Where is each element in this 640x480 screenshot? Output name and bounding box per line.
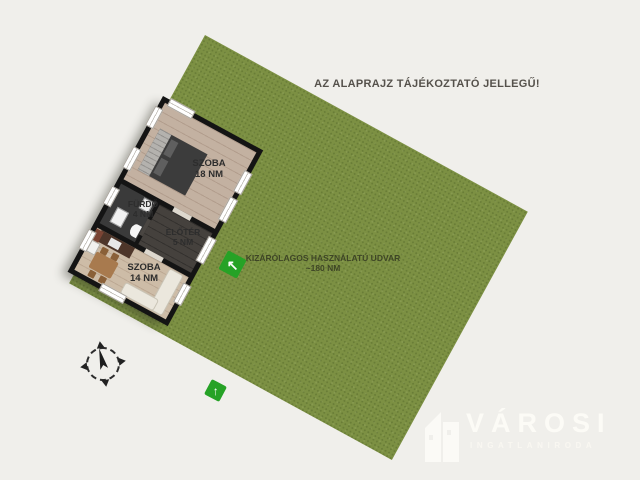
- room-label-szoba-18: SZOBA 18 NM: [192, 159, 225, 181]
- arrow-up-icon: ↑: [213, 385, 219, 397]
- yard-entrance-arrow-icon: ↑: [204, 379, 227, 402]
- logo-building-icon: [419, 404, 465, 462]
- logo-brand-text: VÁROSI: [466, 408, 612, 439]
- logo-subtitle-text: INGATLANIRODA: [470, 441, 596, 450]
- disclaimer-text: AZ ALAPRAJZ TÁJÉKOZTATÓ JELLEGŰ!: [314, 78, 540, 90]
- room-label-szoba-14: SZOBA 14 NM: [127, 263, 160, 285]
- room-label-eloter: ELŐTÉR 5 NM: [166, 228, 200, 248]
- yard-label: KIZÁRÓLAGOS HASZNÁLATÚ UDVAR ~180 NM: [246, 254, 401, 274]
- room-label-furdo: FÜRDŐ 4 NM: [128, 200, 158, 220]
- floor-plan-image: SZOBA 18 NM FÜRDŐ 4 NM ELŐTÉR 5 NM SZOBA…: [0, 0, 640, 480]
- arrow-up-left-icon: ↖: [227, 257, 239, 271]
- compass-icon: [80, 341, 125, 386]
- compass-needle: [80, 341, 125, 386]
